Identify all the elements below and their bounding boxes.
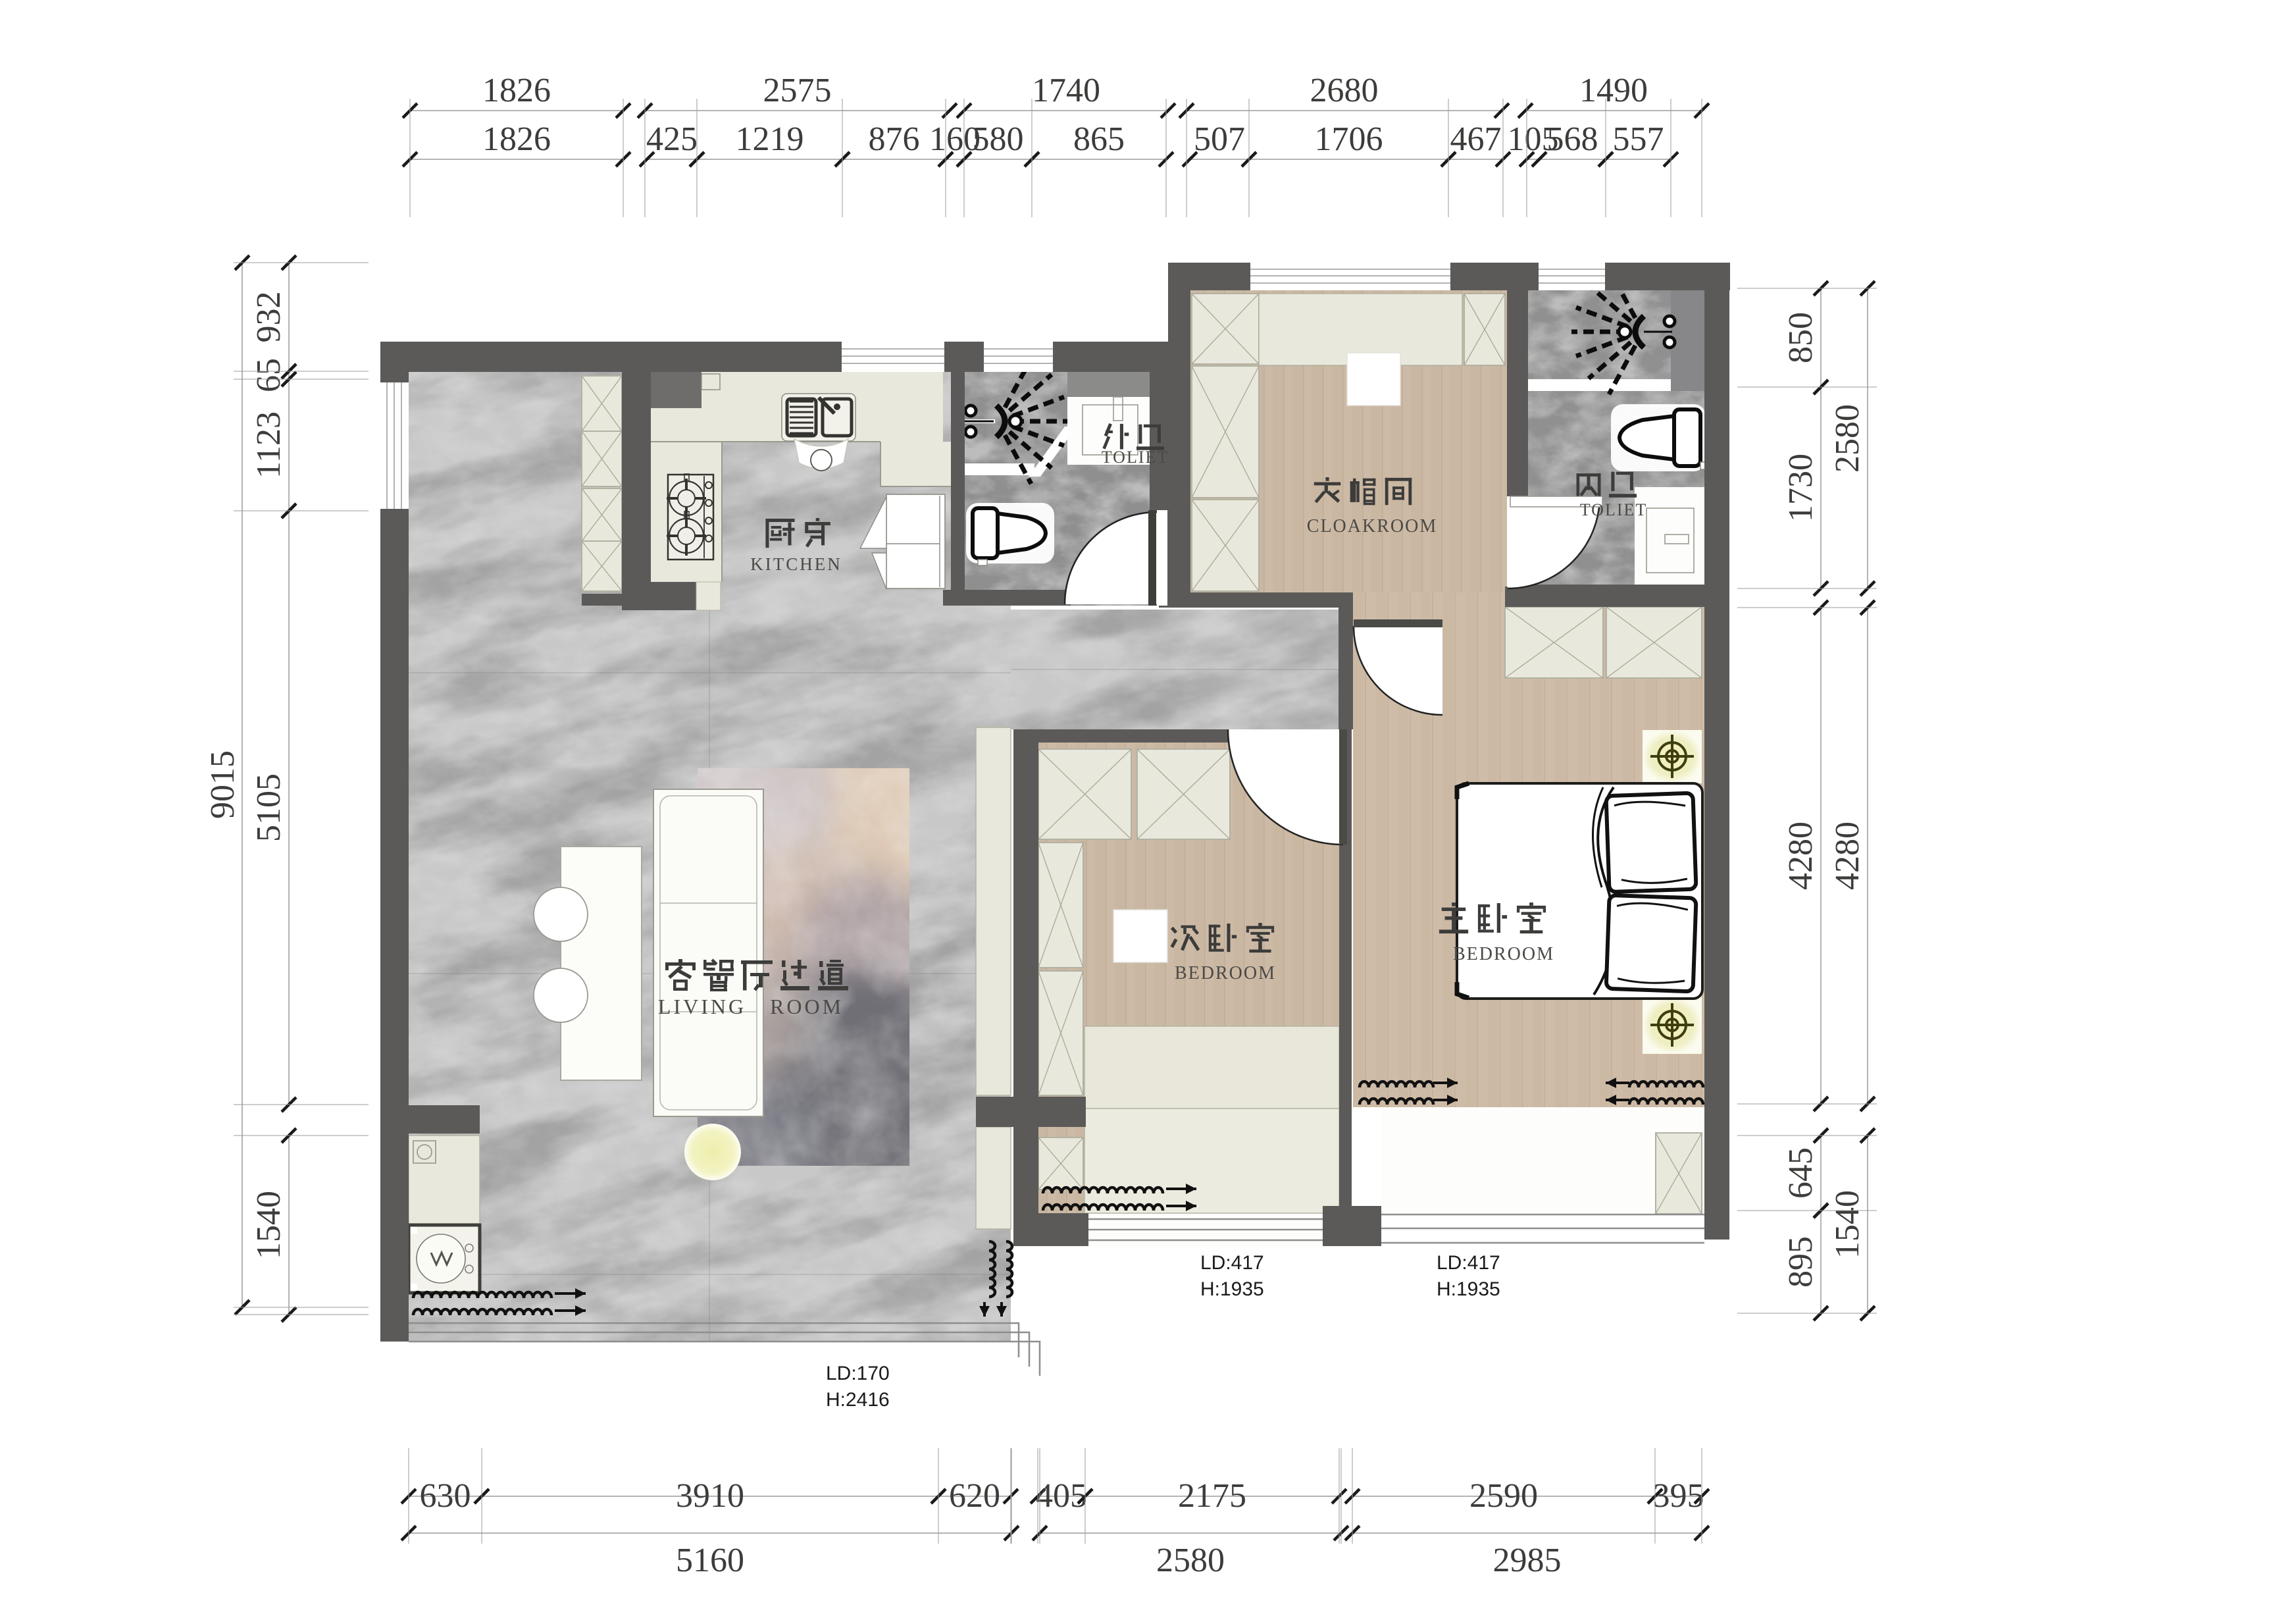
svg-text:2680: 2680 [1310,72,1379,109]
svg-text:1123: 1123 [250,411,288,479]
svg-text:LD:417: LD:417 [1200,1252,1264,1274]
svg-text:LD:417: LD:417 [1437,1252,1500,1274]
svg-text:H:1935: H:1935 [1437,1278,1500,1300]
svg-text:425: 425 [646,120,698,158]
svg-text:3910: 3910 [676,1477,744,1515]
svg-text:1740: 1740 [1032,72,1100,109]
svg-text:645: 645 [1782,1147,1820,1199]
svg-text:568: 568 [1547,120,1598,158]
svg-text:620: 620 [949,1477,1000,1515]
svg-text:LD:170: LD:170 [826,1363,890,1384]
svg-text:850: 850 [1782,312,1820,363]
svg-text:1730: 1730 [1782,454,1820,522]
svg-text:932: 932 [250,292,288,343]
svg-text:BEDROOM: BEDROOM [1175,963,1276,983]
svg-text:5105: 5105 [250,773,288,842]
svg-text:CLOAKROOM: CLOAKROOM [1307,516,1437,536]
svg-text:895: 895 [1782,1236,1820,1288]
svg-text:2575: 2575 [763,72,832,109]
svg-text:TOLIET: TOLIET [1102,448,1169,467]
svg-text:BEDROOM: BEDROOM [1453,944,1554,964]
svg-text:2590: 2590 [1469,1477,1538,1515]
svg-text:507: 507 [1194,120,1245,158]
svg-text:LIVING ROOM: LIVING ROOM [658,995,844,1018]
svg-text:1219: 1219 [736,120,804,158]
svg-text:405: 405 [1036,1477,1087,1515]
svg-text:1540: 1540 [250,1191,288,1259]
svg-text:1540: 1540 [1829,1190,1866,1259]
svg-text:H:2416: H:2416 [826,1389,890,1411]
svg-text:630: 630 [420,1477,471,1515]
svg-text:9015: 9015 [204,750,242,819]
svg-text:395: 395 [1653,1477,1704,1515]
svg-text:557: 557 [1613,120,1664,158]
svg-text:2985: 2985 [1493,1542,1562,1579]
svg-text:2175: 2175 [1178,1477,1246,1515]
svg-text:4280: 4280 [1829,822,1866,890]
svg-text:TOLIET: TOLIET [1580,500,1648,519]
svg-text:467: 467 [1450,120,1502,158]
svg-text:1826: 1826 [482,120,551,158]
svg-text:876: 876 [869,120,920,158]
svg-text:2580: 2580 [1829,404,1866,473]
svg-text:2580: 2580 [1156,1542,1225,1579]
svg-text:865: 865 [1073,120,1125,158]
svg-text:65: 65 [250,358,288,392]
svg-text:H:1935: H:1935 [1200,1278,1264,1300]
svg-text:KITCHEN: KITCHEN [750,554,842,574]
svg-text:4280: 4280 [1782,822,1820,890]
svg-text:1490: 1490 [1579,72,1648,109]
svg-text:1826: 1826 [482,72,551,109]
svg-text:5160: 5160 [676,1542,744,1579]
svg-text:1706: 1706 [1315,120,1383,158]
svg-text:580: 580 [973,120,1024,158]
